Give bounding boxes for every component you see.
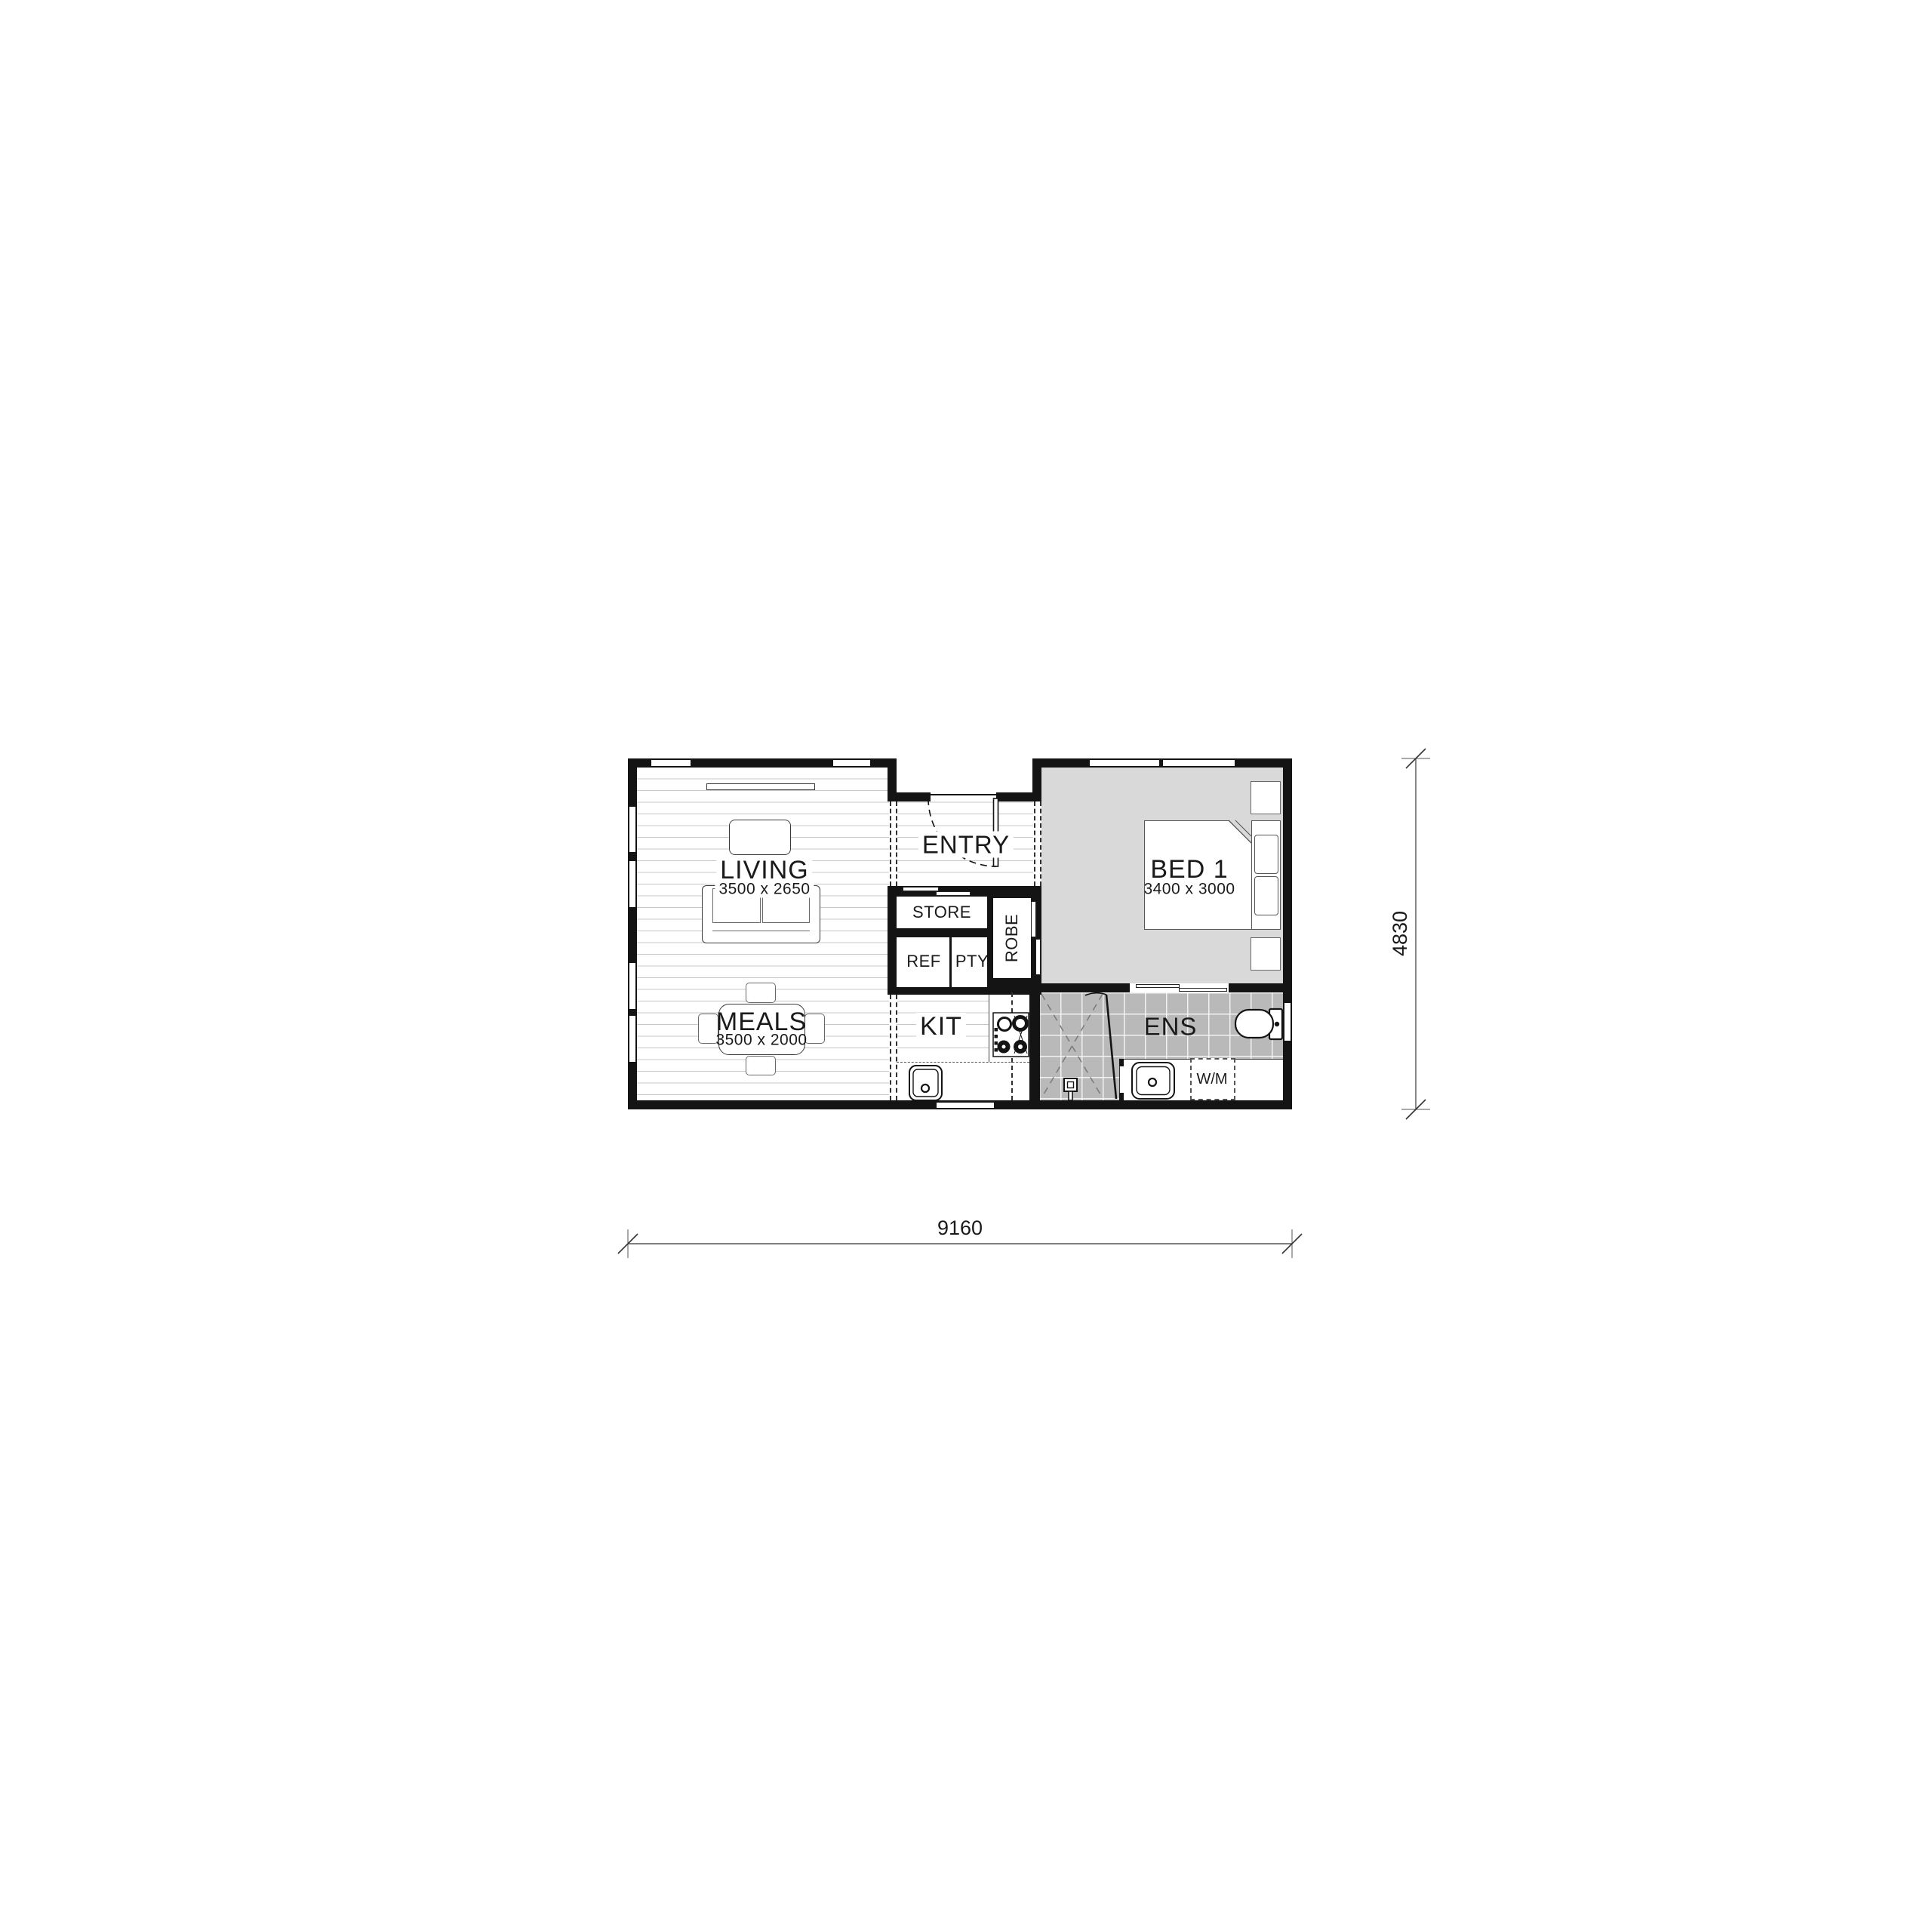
entry-label: ENTRY (918, 832, 1014, 858)
cooktop-icon (993, 1013, 1029, 1057)
living-size-label: 3500 x 2650 (715, 881, 814, 898)
vanity-sink (1132, 1063, 1174, 1099)
store-label: STORE (912, 904, 971, 921)
dimension-width: 9160 (618, 1217, 1302, 1258)
toilet-icon (1235, 1009, 1282, 1039)
wm-label: W/M (1196, 1072, 1227, 1087)
shower (1041, 993, 1116, 1100)
floor-plan: 9160 4830 LIVING 3500 x 2650 ENTRY KIT M… (0, 0, 1932, 1932)
bed1-label: BED 1 (1150, 857, 1228, 882)
ref-label: REF (906, 953, 941, 970)
meals-size-label: 3500 x 2000 (715, 1032, 807, 1048)
dimension-height: 4830 (1389, 749, 1430, 1119)
robe-label: ROBE (1004, 914, 1020, 962)
dimension-width-value: 9160 (937, 1217, 983, 1239)
dimension-height-value: 4830 (1389, 911, 1411, 956)
kitchen-sink (909, 1066, 942, 1100)
kit-label: KIT (916, 1013, 966, 1040)
pty-label: PTY (955, 953, 989, 970)
shower-screen (1106, 995, 1116, 1099)
ens-label: ENS (1144, 1014, 1198, 1039)
bed1-size-label: 3400 x 3000 (1143, 881, 1235, 897)
shower-head-icon (1064, 1078, 1077, 1100)
bed-fold (1229, 820, 1251, 843)
